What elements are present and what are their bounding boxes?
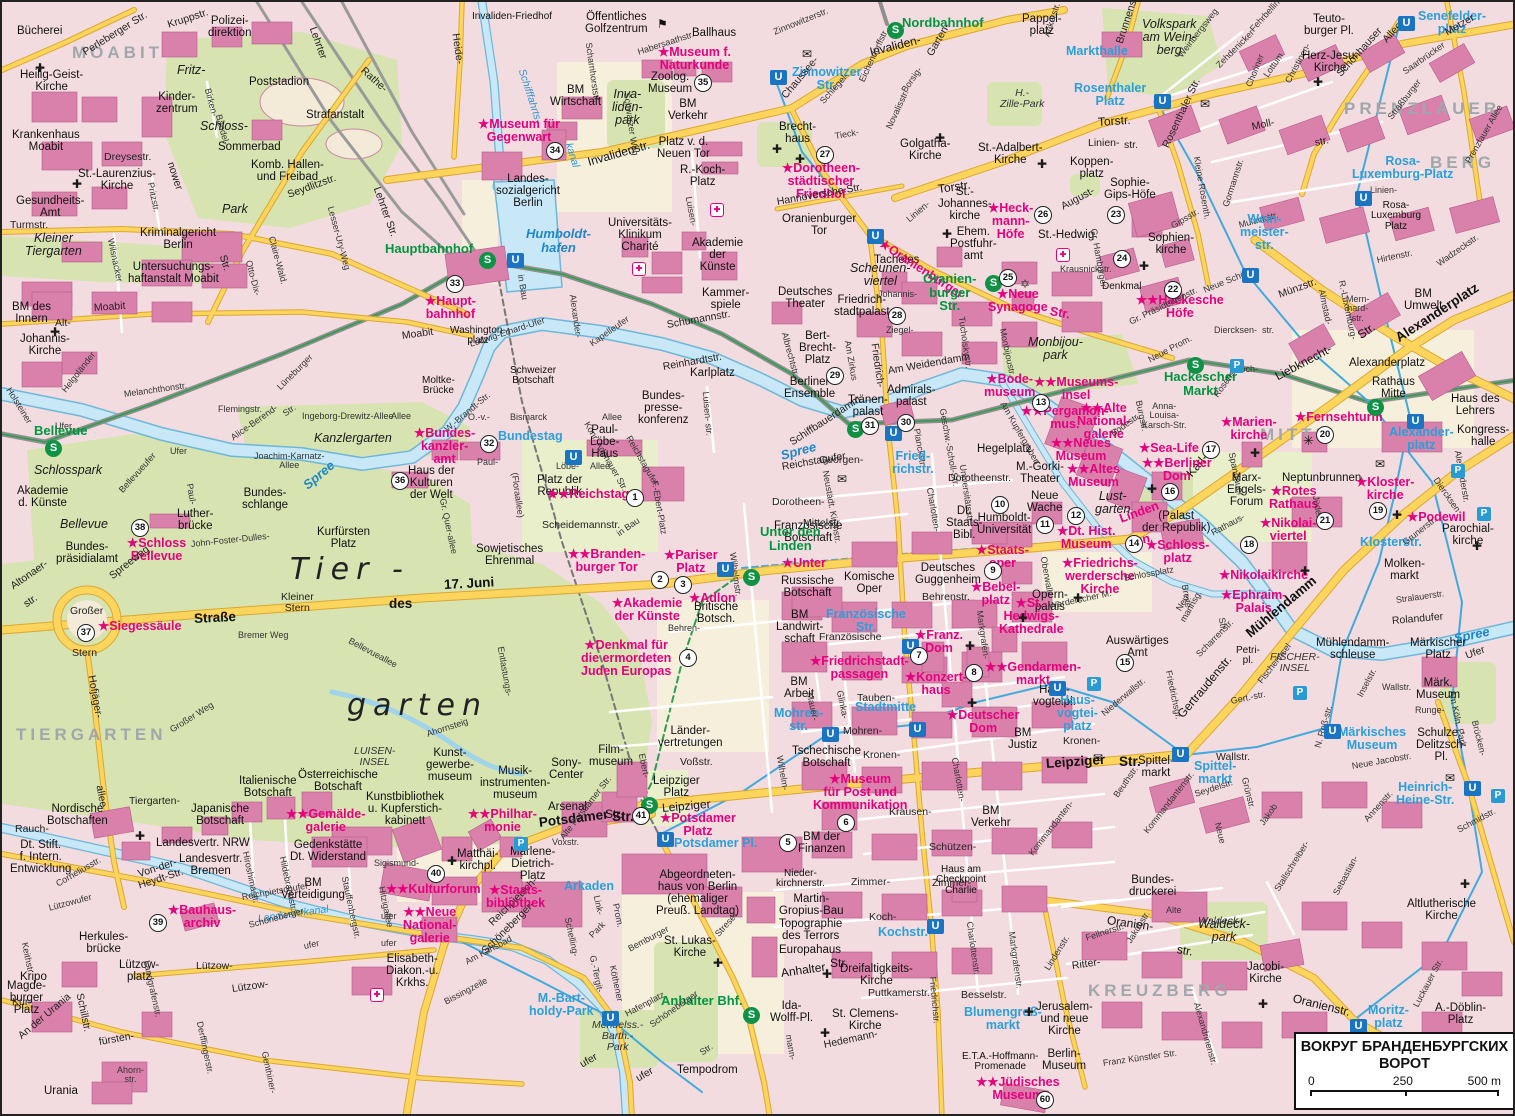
place-label: Sony-Center: [549, 758, 584, 782]
street-label: Am Zirkus: [842, 340, 858, 382]
street-label: Ebert-: [636, 753, 650, 779]
poi-number-badge: 22: [1164, 281, 1182, 299]
place-label: Gesundheits-Amt: [16, 196, 84, 220]
sbahn-station-label: Bellevue: [34, 424, 87, 438]
place-label: Ehem.Postfuhr-amt: [950, 227, 997, 263]
street-label: Wilsnacker: [105, 238, 123, 283]
ubahn-station-label: Arkaden: [564, 880, 614, 893]
post-office-icon: ✉: [837, 473, 847, 485]
place-label: Polizei-direktion: [208, 16, 251, 40]
place-label: Admirals-palast: [887, 385, 936, 409]
scale-tick-250: 250: [1393, 1074, 1413, 1088]
park-label: LUISEN-INSEL: [354, 746, 395, 768]
street-label: Gipsstr.: [1170, 207, 1201, 230]
poi-number-badge: 11: [1036, 516, 1054, 534]
street-label: Georgen-: [819, 455, 863, 466]
ubahn-station-label: RosenthalerPlatz: [1074, 82, 1146, 108]
poi-label: ★★Gemälde-galerie: [286, 808, 365, 834]
street-label: Zimmer-: [932, 878, 971, 889]
ubahn-station-label: Rosa-Luxemburg-Platz: [1352, 155, 1453, 181]
street-label: Flemingstr.: [218, 405, 262, 414]
street-label: Ufer: [170, 447, 187, 456]
street-label: Tauben-: [857, 693, 895, 704]
street-label: Sigismund-: [374, 859, 419, 868]
street-label: Bremer Weg: [238, 631, 288, 640]
place-label: Johannis-Kirche: [20, 334, 70, 358]
street-label: Tiergarten-: [129, 796, 180, 807]
street-label: Albrechtstr.: [779, 331, 800, 377]
place-label: Rosa-LuxemburgPlatz: [1371, 201, 1421, 232]
street-label: Rolandufer: [1392, 612, 1444, 627]
poi-number-badge: 39: [149, 914, 167, 932]
parking-icon: P: [1230, 359, 1244, 373]
u-bahn-icon: U: [770, 70, 787, 85]
street-label: Schelling-: [562, 917, 579, 958]
poi-number-badge: 26: [1034, 206, 1052, 224]
street-label: Scheidemannstr.: [542, 520, 620, 531]
street-label: Moabit: [94, 301, 126, 314]
parking-icon: P: [1293, 686, 1307, 700]
poi-number-badge: 35: [694, 74, 712, 92]
street-label: Dreysestr.: [104, 152, 151, 163]
u-bahn-icon: U: [909, 722, 926, 737]
place-label: E.T.A.-Hoffmann-Promenade: [962, 1052, 1039, 1073]
street-label: ufer: [381, 912, 397, 921]
sbahn-station-label: Unter denLinden: [760, 525, 821, 552]
street-label: nower: [165, 161, 184, 192]
street-label: Großer Weg: [169, 701, 216, 735]
church-icon: ✚: [935, 132, 945, 144]
street-label: Ufer: [1464, 645, 1486, 662]
church-icon: ✚: [1037, 158, 1047, 170]
poi-number-badge: 33: [446, 275, 464, 293]
scale-bar: 0 250 500 m: [1308, 1074, 1501, 1100]
post-office-icon: ✉: [1375, 458, 1385, 470]
district-label: PRENZLAUER: [1344, 100, 1500, 118]
water-label: Schifffahrts-: [516, 68, 544, 125]
poi-number-badge: 10: [991, 496, 1009, 514]
scale-tick-0: 0: [1308, 1074, 1315, 1088]
place-label: Musik-instrumenten-museum: [480, 766, 550, 802]
place-label: Parochial-kirche: [1442, 524, 1494, 548]
street-label: Hirtenstr.: [1376, 249, 1413, 266]
place-label: Strafanstalt: [306, 110, 364, 122]
street-label: Paul-: [477, 458, 498, 467]
street-label: Moabit: [401, 327, 434, 342]
street-label: Inselstr.: [1356, 667, 1379, 699]
place-label: Petri-pl.: [1236, 646, 1260, 667]
street-label: Stralauerstr.: [1395, 589, 1444, 605]
place-label: Herkules-brücke: [79, 932, 128, 956]
street-label: Grünstr.: [1239, 777, 1256, 810]
church-icon: ✚: [942, 228, 952, 240]
place-label: Landesvertr.Bremen: [179, 854, 242, 878]
street-label: Gr. Quer-allee: [437, 498, 458, 555]
street-label: Neu-mannsg.: [1171, 585, 1204, 624]
place-label: Karlplatz: [690, 368, 735, 380]
district-label: KREUZBERG: [1088, 982, 1232, 1000]
street-label: Lehrter: [307, 26, 329, 61]
street-label: Pritzstr.: [145, 182, 160, 213]
u-bahn-icon: U: [1324, 724, 1341, 739]
road-label: Torstr.: [1098, 114, 1131, 129]
place-label: BM derFinanzen: [798, 832, 845, 856]
u-bahn-icon: U: [1049, 681, 1066, 696]
street-label: Lehrter Str.: [371, 186, 399, 239]
place-label: RathausMitte: [1372, 377, 1415, 401]
u-bahn-icon: U: [1154, 94, 1171, 109]
street-label: ufer: [634, 1066, 655, 1084]
scale-tick-500: 500 m: [1468, 1074, 1501, 1088]
street-label: Charlotten-: [949, 757, 966, 802]
church-icon: ✚: [1460, 878, 1470, 890]
street-label: Brücken-: [1469, 720, 1487, 757]
post-office-icon: ✉: [1093, 752, 1103, 764]
place-label: Teuto-burger Pl.: [1304, 14, 1354, 38]
place-label: Paul-Löbe-Haus: [590, 425, 619, 461]
church-icon: ✚: [772, 143, 782, 155]
ubahn-station-label: MärkischesMuseum: [1338, 726, 1406, 752]
park-label: Fritz-: [177, 64, 205, 77]
synagogue-icon: ✡: [1020, 278, 1030, 290]
poi-number-badge: 2: [651, 571, 669, 589]
street-label: Reichstagufer: [624, 434, 660, 487]
map-title-line2: ВОРОТ: [1296, 1056, 1513, 1073]
church-icon: ✚: [1300, 565, 1310, 577]
ubahn-station-label: Kochstr.: [878, 926, 928, 939]
street-label: str.: [1262, 326, 1274, 335]
street-label: Fehrbelliner: [1249, 0, 1288, 34]
street-label: Niederwallstr.: [1100, 676, 1147, 718]
poi-number-badge: 25: [999, 269, 1017, 287]
street-label: Ziegel-: [886, 326, 914, 335]
poi-number-badge: 41: [632, 807, 650, 825]
place-label: A.-Döblin-Platz: [1435, 1003, 1486, 1027]
place-label: Landes-sozialgerichtBerlin: [496, 174, 560, 210]
poi-number-badge: 60: [1036, 1091, 1054, 1109]
poi-label: ★Denkmal fürdie ermordetenJuden Europas: [581, 639, 671, 678]
place-label: Jacobi-Kirche: [1247, 962, 1284, 986]
poi-number-badge: 24: [1113, 250, 1131, 268]
place-label: SowjetischesEhrenmal: [476, 544, 543, 568]
place-label: Hegelplatz: [977, 444, 1031, 456]
church-icon: ✚: [135, 830, 145, 842]
poi-number-badge: 21: [1316, 512, 1334, 530]
place-label: St. Lukas-Kirche: [664, 936, 716, 960]
street-label: Saarbrücker: [1401, 41, 1447, 77]
poi-number-badge: 23: [1107, 206, 1125, 224]
church-icon: ✚: [72, 178, 82, 190]
street-label: Kronen-: [1063, 736, 1100, 747]
place-label: Magde-burgerPlatz: [7, 981, 46, 1017]
street-label: Derfflingerstr.: [194, 1021, 214, 1075]
street-label: Brunnenstr.: [1115, 0, 1142, 45]
poi-label: Str.: [1049, 305, 1071, 321]
street-label: Stern: [72, 648, 97, 659]
place-label: St.-Johannes-kirche: [938, 187, 992, 223]
poi-label: ★Sea-Life: [1139, 442, 1199, 455]
place-label: Mühlendamm-schleuse: [1316, 638, 1390, 662]
poi-number-badge: 19: [1369, 502, 1387, 520]
church-icon: ✚: [1313, 76, 1323, 88]
place-label: Spittel-markt: [1138, 756, 1174, 780]
u-bahn-icon: U: [867, 229, 884, 244]
street-label: Markgrafenstr.: [1006, 931, 1023, 989]
street-label: Dorotheen-: [772, 497, 825, 508]
poi-number-badge: 15: [1116, 654, 1134, 672]
place-label: Platz v. d.Neuen Tor: [657, 137, 710, 161]
s-bahn-icon: S: [743, 569, 760, 586]
place-label: Urania: [44, 1086, 78, 1098]
street-label: Moll-: [1251, 117, 1276, 132]
u-bahn-icon: U: [717, 562, 734, 577]
park-label: Park: [222, 203, 248, 216]
street-label: Bismarck: [510, 413, 547, 422]
hospital-icon: ✚: [1056, 248, 1070, 262]
poi-label: ★Nikolaikirche: [1219, 569, 1308, 582]
place-label: Brecht-haus: [779, 122, 816, 146]
street-label: Altonaer-: [9, 559, 50, 592]
place-label: AltlutherischeKirche: [1407, 899, 1476, 923]
tv-tower-icon: ✳: [1303, 434, 1314, 447]
poi-number-badge: 17: [1202, 441, 1220, 459]
road-label: des: [389, 597, 412, 611]
poi-number-badge: 20: [1316, 426, 1334, 444]
poi-label: ★Akademieder Künste: [612, 597, 682, 623]
street-label: Voxstr.: [552, 838, 579, 847]
street-label: Rosenthaler Str.: [1161, 77, 1203, 150]
street-label: F.-Ebert-Platz: [649, 480, 668, 535]
street-label: Otto-Dix-: [243, 259, 261, 296]
ubahn-station-label: Spittel-markt: [1194, 760, 1236, 786]
street-label: ufer: [381, 939, 397, 948]
place-label: Martin-Gropius-Bau: [779, 894, 844, 918]
poi-label: ★Bode-museum: [984, 373, 1035, 399]
park-label: Schlosspark: [34, 464, 102, 477]
street-label: Glinka-: [834, 690, 849, 720]
poi-label: ★Konzert-haus: [905, 671, 967, 697]
street-label: Beuthstr.: [1112, 765, 1140, 799]
place-label: ÖffentlichesGolfzentrum: [585, 12, 648, 36]
road-label: Str.: [612, 810, 634, 824]
u-bahn-icon: U: [1464, 781, 1481, 796]
poi-number-badge: 3: [674, 576, 692, 594]
poi-label: ★★NeuesMuseum: [1051, 437, 1111, 463]
street-label: Krausen-: [889, 807, 932, 818]
street-label: Linien-: [1370, 186, 1397, 195]
street-label: Schmidstr.: [1456, 807, 1497, 835]
ubahn-station-label: M.-Bart-holdy-Park: [529, 992, 594, 1018]
street-label: Großer: [70, 606, 103, 617]
street-label: Paul-: [184, 483, 197, 505]
street-label: Kommandanten-: [1027, 799, 1075, 857]
ubahn-station-label: Alexander-platz: [1389, 426, 1454, 452]
street-label: Str.: [281, 403, 297, 418]
road-label: Liebknecht-: [1273, 343, 1334, 383]
ubahn-station-label: Moritz-platz: [1368, 1004, 1409, 1030]
s-bahn-icon: S: [45, 440, 62, 457]
church-icon: ✚: [822, 968, 832, 980]
place-label: BMVerteidigung: [281, 878, 345, 902]
street-label: Alexandrinenstr.: [1192, 1001, 1219, 1066]
street-label: Runge-: [1415, 706, 1445, 715]
place-label: Ida-Wolff-Pl.: [770, 1001, 813, 1025]
sbahn-station-label: Hauptbahnhof: [385, 242, 473, 256]
church-icon: ✚: [795, 153, 805, 165]
street-label: Zimmer-: [851, 877, 890, 888]
street-label: Holsteiner: [4, 386, 33, 425]
poi-label: ★NeueSynagoge: [988, 288, 1048, 314]
poi-label: ★Bauhaus-archiv: [168, 904, 236, 930]
poi-label: ★★Philhar-monie: [468, 808, 537, 834]
place-label: BM desInnern: [12, 302, 51, 326]
park-label: Bellevue: [60, 518, 108, 531]
poi-number-badge: 13: [1032, 394, 1050, 412]
poi-number-badge: 31: [861, 417, 879, 435]
place-label: M.-Gorki-Theater: [1016, 462, 1064, 486]
place-label: Jerusalem-und neueKirche: [1036, 1002, 1093, 1038]
street-label: Landgrafenstr.: [141, 960, 162, 1018]
street-label: Dorotheenstr.: [948, 473, 1011, 484]
place-label: DeutschesTheater: [778, 287, 832, 311]
church-icon: ✚: [713, 957, 723, 969]
place-label: NordischeBotschaften: [47, 804, 108, 828]
street-label: Luisen- str.: [700, 391, 713, 436]
poi-label: ★★AltesMuseum: [1067, 463, 1120, 489]
place-label: (Palastder Republik): [1142, 511, 1210, 535]
place-label: Dt.Staats-Bibl.: [946, 506, 982, 542]
street-label: Link-: [591, 895, 604, 916]
street-label: Linien-: [905, 200, 932, 225]
place-label: NeueWache: [1027, 491, 1062, 515]
street-label: Koch-: [869, 912, 896, 923]
place-label: Bert-Brecht-Platz: [799, 331, 836, 367]
street-label: Kruppstr.: [166, 7, 209, 30]
street-label: Behren-: [668, 624, 700, 633]
poi-number-badge: 18: [1240, 536, 1258, 554]
street-label: Kommandantenstr.: [1142, 770, 1196, 835]
street-label: Schützen-: [929, 842, 976, 853]
street-label: ufer: [303, 939, 320, 951]
street-label: Heide-: [450, 33, 465, 65]
street-label: Französische: [819, 632, 881, 643]
poi-label: ★Kloster-kirche: [1356, 476, 1414, 502]
church-icon: ✚: [1024, 1006, 1034, 1018]
place-label: AkademiederKünste: [692, 238, 743, 274]
church-icon: ✚: [967, 697, 977, 709]
street-label: Bissingzeile: [443, 976, 489, 1007]
parking-icon: P: [1491, 789, 1505, 803]
place-label: RussischeBotschaft: [781, 576, 834, 600]
city-map: MOABITTIERGARTENMITTEKREUZBERGPRENZLAUER…: [0, 0, 1515, 1116]
place-label: Berlin-Museum: [1042, 1049, 1086, 1073]
place-label: AuswärtigesAmt: [1106, 636, 1169, 660]
street-label: August-: [1059, 186, 1096, 213]
church-icon: ✚: [447, 855, 457, 867]
street-label: Tieck-: [834, 128, 859, 141]
road-label: Invalidenstr.: [586, 139, 651, 169]
place-label: Ballhaus: [692, 28, 736, 40]
street-label: Allee: [602, 413, 622, 422]
street-label: Scharrenstr.: [1195, 618, 1236, 659]
street-label: Joachim-Karnatz-Allee: [254, 452, 325, 471]
street-label: O.-v.-: [468, 413, 490, 422]
place-label: Haus desLehrers: [1451, 394, 1500, 418]
place-label: Film-museum: [589, 745, 633, 769]
u-bahn-icon: U: [565, 450, 582, 465]
street-label: John-Foster-Dulles-: [191, 532, 271, 550]
street-label: Besselstr.: [961, 990, 1007, 1001]
park-label: Waldeck-: [1198, 916, 1242, 927]
street-label: Novalisstr.: [885, 89, 911, 131]
poi-label: ★Haupt-bahnhof: [425, 295, 476, 321]
poi-number-badge: 8: [965, 664, 983, 682]
place-label: St.-Adalbert-Kirche: [978, 143, 1043, 167]
church-icon: ✚: [965, 640, 975, 652]
u-bahn-icon: U: [1407, 414, 1424, 429]
place-label: Sophien-kirche: [1148, 233, 1194, 257]
street-label: Hofjäger-: [86, 675, 104, 719]
poi-number-badge: 37: [77, 624, 95, 642]
street-label: Von-der-Heydt-Str.: [134, 856, 185, 891]
place-label: LeipzigerPlatz: [653, 776, 700, 800]
road-label: Straße: [194, 610, 237, 626]
poi-label: ★Unter: [782, 557, 826, 570]
sbahn-station-label: Oranien-burgerStr.: [923, 272, 976, 313]
park-label: Tier -: [290, 554, 410, 585]
street-label: Allee: [391, 412, 411, 421]
place-label: Kongress-halle: [1457, 425, 1509, 449]
street-label: G.-Tergit-: [587, 955, 604, 994]
place-label: Universitäts-KlinikumCharité: [608, 218, 672, 254]
parking-icon: P: [514, 837, 528, 851]
street-label: Rauch-: [15, 824, 49, 835]
church-icon: ✚: [1139, 260, 1149, 272]
district-label: TIERGARTEN: [16, 726, 167, 744]
street-label: Stallschreiber-: [1273, 839, 1311, 893]
poi-number-badge: 6: [837, 814, 855, 832]
hospital-icon: ✚: [710, 203, 724, 217]
map-title-line1: ВОКРУГ БРАНДЕНБУРГСКИХ: [1296, 1039, 1513, 1056]
place-label: Dt. Stift.f. Intern.Entwicklung: [10, 840, 71, 876]
place-label: Matthäi-kirchpl.: [457, 849, 499, 873]
park-label: Monbijou-park: [1028, 336, 1083, 362]
street-label: KleinerStern: [281, 592, 314, 614]
place-label: TschechischeBotschaft: [792, 746, 861, 770]
poi-label: ★★NeueNational-galerie: [403, 906, 456, 945]
street-label: Entlastungs-: [495, 646, 513, 697]
street-label: Am Weidendamm: [887, 352, 971, 377]
street-label: Kapelleufer: [588, 315, 631, 349]
s-bahn-icon: S: [887, 22, 904, 39]
poi-label: ★Marien-kirche: [1221, 416, 1277, 442]
poi-number-badge: 16: [1161, 483, 1179, 501]
street-label: Claire-Wald.: [266, 235, 288, 285]
street-label: Schumannstr.: [666, 309, 731, 331]
poi-label: ★★Kulturforum: [386, 883, 481, 896]
street-label: Friedrich-: [869, 343, 886, 388]
street-label: Melanchthonstr.: [123, 381, 187, 399]
place-label: BMLandwirt-schaft: [776, 610, 823, 646]
place-label: Haus derKulturender Welt: [408, 466, 455, 502]
ubahn-station-label: Wein-meister-str.: [1240, 213, 1289, 252]
s-bahn-icon: S: [1367, 399, 1384, 416]
street-label: fürsten-: [98, 1031, 135, 1048]
street-label: Feilnerstr.: [1085, 922, 1125, 943]
street-label: Str.: [698, 1042, 714, 1057]
place-label: Elisabeth-Diakon.-u.Krkhs.: [386, 954, 438, 990]
s-bahn-icon: S: [1187, 357, 1204, 374]
